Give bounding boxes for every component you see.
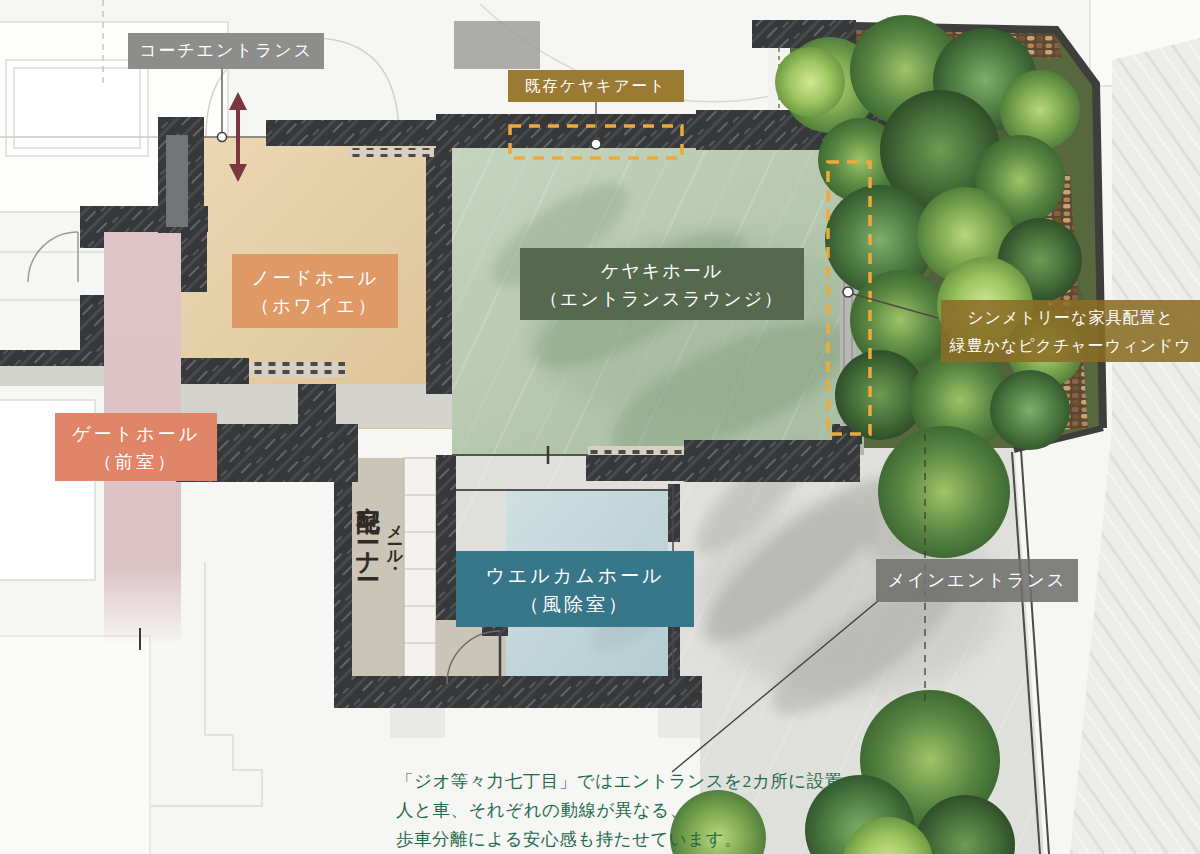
label-node-hall-line1: ノードホール bbox=[232, 264, 398, 292]
label-coach-entrance: コーチエントランス bbox=[128, 33, 324, 69]
label-symmetry-line2: 緑豊かなピクチャーウィンドウ bbox=[941, 332, 1200, 360]
label-node-hall: ノードホール （ホワイエ） bbox=[232, 254, 398, 328]
pilaster bbox=[166, 135, 188, 227]
label-mail: メール・ bbox=[384, 514, 405, 562]
label-delivery-corner: 宅配コーナー bbox=[352, 487, 384, 572]
label-welcome-hall: ウエルカムホール （風除室） bbox=[456, 551, 694, 627]
description-line1: 「ジオ等々力七丁目」ではエントランスを2カ所に設置。 bbox=[396, 767, 861, 796]
label-welcome-hall-line2: （風除室） bbox=[456, 590, 694, 619]
description-line2: 人と車、それぞれの動線が異なる、 bbox=[396, 796, 861, 825]
floor-plan-illustration: コーチエントランス 既存ケヤキアート ノードホール （ホワイエ） ケヤキホール … bbox=[0, 0, 1200, 854]
label-gate-hall-line1: ゲートホール bbox=[55, 420, 217, 448]
description-line3: 歩車分離による安心感も持たせています。 bbox=[396, 825, 861, 854]
label-symmetry-note: シンメトリーな家具配置と 緑豊かなピクチャーウィンドウ bbox=[941, 300, 1200, 362]
label-welcome-hall-line1: ウエルカムホール bbox=[456, 561, 694, 590]
label-main-entrance: メインエントランス bbox=[876, 559, 1078, 602]
label-keyaki-art: 既存ケヤキアート bbox=[508, 70, 684, 102]
leader-dot bbox=[843, 287, 853, 297]
label-node-hall-line2: （ホワイエ） bbox=[232, 292, 398, 320]
label-keyaki-hall-line2: （エントランスラウンジ） bbox=[520, 285, 804, 313]
label-keyaki-hall-line1: ケヤキホール bbox=[520, 257, 804, 285]
description-text: 「ジオ等々力七丁目」ではエントランスを2カ所に設置。 人と車、それぞれの動線が異… bbox=[396, 767, 861, 854]
label-symmetry-line1: シンメトリーな家具配置と bbox=[941, 304, 1200, 332]
wall-ledge bbox=[0, 366, 104, 386]
label-gate-hall-line2: （前室） bbox=[55, 448, 217, 476]
label-gate-hall: ゲートホール （前室） bbox=[55, 413, 217, 481]
label-keyaki-hall: ケヤキホール （エントランスラウンジ） bbox=[520, 248, 804, 320]
leader-dot bbox=[218, 133, 227, 142]
leader-dot bbox=[591, 139, 601, 149]
